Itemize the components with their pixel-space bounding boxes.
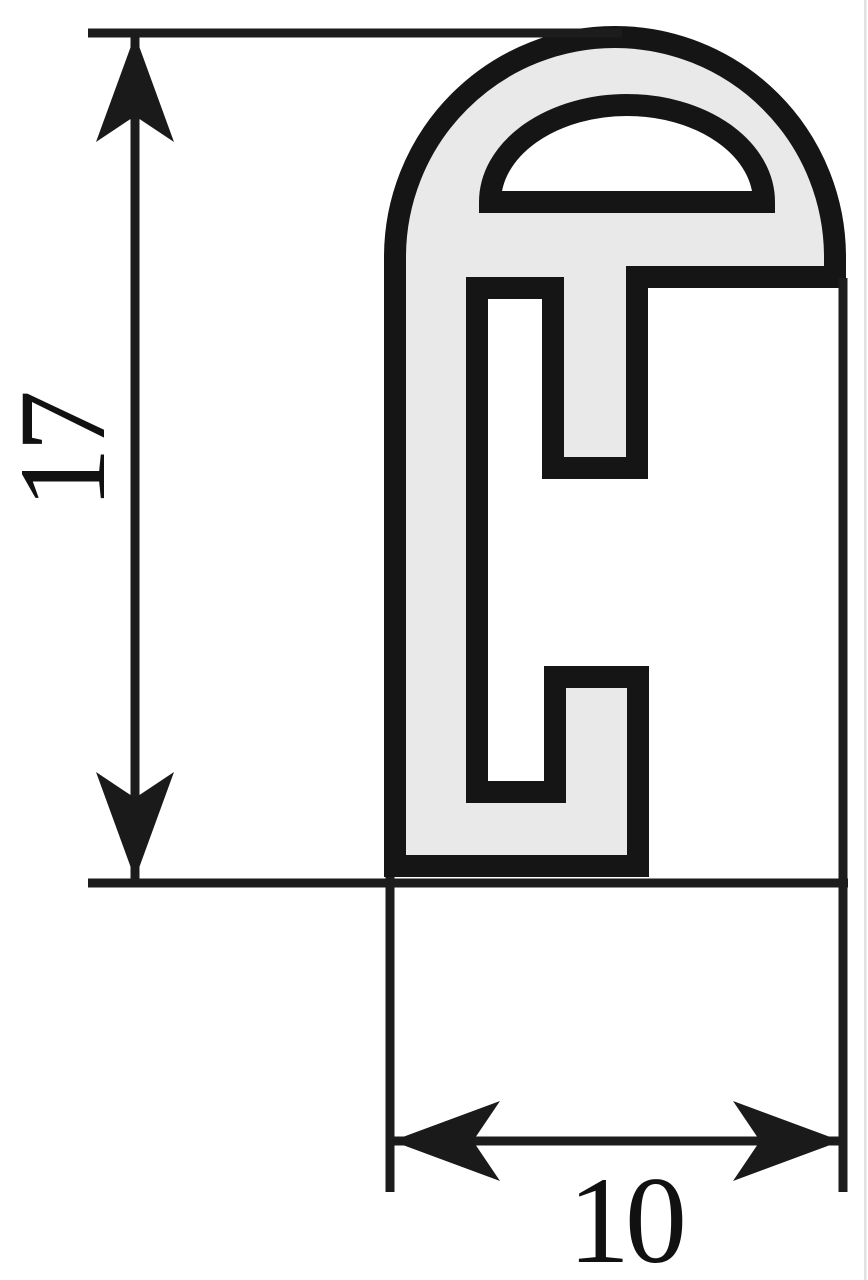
drawing-canvas: 17 10 <box>0 0 868 1280</box>
height-dimension-label: 17 <box>0 393 131 509</box>
width-dimension-label: 10 <box>568 1152 683 1280</box>
scan-edge-artifact <box>864 0 867 1280</box>
profile-technical-drawing: 17 10 <box>0 0 868 1280</box>
